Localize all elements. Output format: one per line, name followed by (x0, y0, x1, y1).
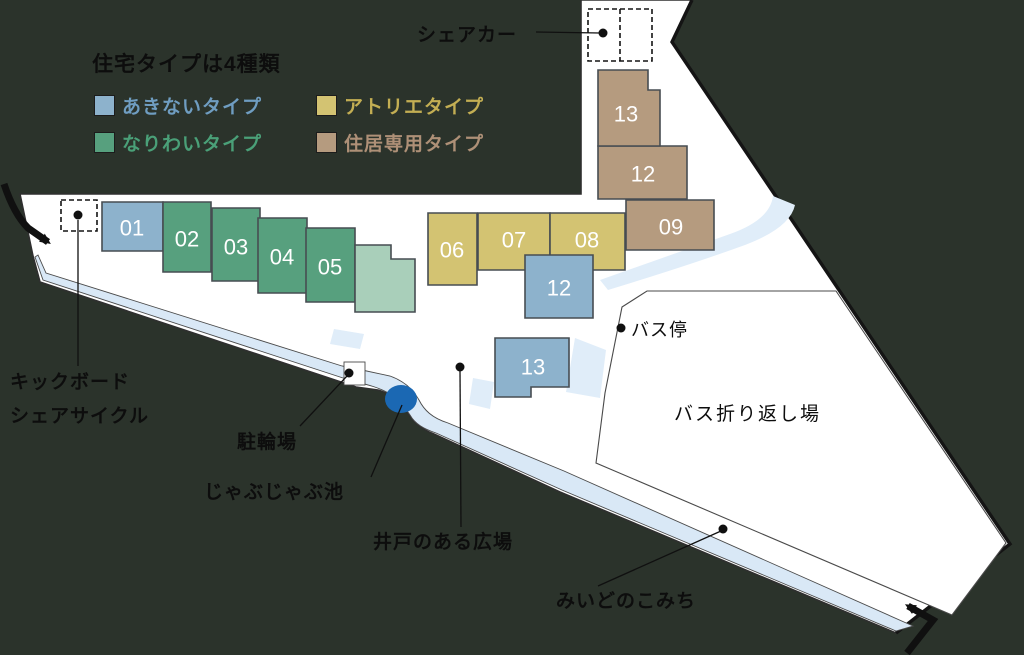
building-number-03: 03 (224, 235, 248, 260)
building-number-01: 01 (120, 216, 144, 241)
legend-item-jukyo: 住居専用タイプ (316, 129, 484, 156)
bus-stop-dot (617, 324, 626, 333)
kickboard-dot (74, 211, 83, 220)
building-number-12: 12 (547, 276, 571, 301)
legend-swatch-akinai (94, 95, 115, 116)
site-map: 01020304050607080912131213 (0, 0, 1024, 655)
komichi-leader (598, 531, 721, 586)
legend-label-jukyo: 住居専用タイプ (344, 129, 484, 156)
legend-swatch-jukyo (316, 132, 337, 153)
building-number-06: 06 (440, 238, 464, 263)
map-label-bus-stop: バス停 (631, 316, 688, 342)
map-label-kickboard: キックボード シェアサイクル (10, 366, 149, 434)
map-label-pond: じゃぶじゃぶ池 (204, 477, 344, 504)
legend-item-nariwai: なりわいタイプ (94, 129, 262, 156)
building-number-13: 13 (614, 102, 638, 127)
legend-swatch-atelier (316, 95, 337, 116)
pond-leader (371, 405, 402, 477)
legend-label-atelier: アトリエタイプ (344, 92, 484, 119)
legend-label-nariwai: なりわいタイプ (122, 129, 262, 156)
komichi-dot (719, 525, 728, 534)
building-number-07: 07 (502, 228, 526, 253)
map-label-kickboard-line1: キックボード (10, 366, 149, 400)
map-label-bicycle-parking: 駐輪場 (237, 427, 297, 454)
building-number-02: 02 (175, 227, 199, 252)
map-label-bus-turnaround: バス折り返し場 (674, 399, 821, 426)
map-label-kickboard-line2: シェアサイクル (10, 400, 149, 434)
map-label-well-plaza: 井戸のある広場 (373, 527, 513, 554)
building-number-09: 09 (659, 215, 683, 240)
page-title: 住宅タイプは4種類 (92, 48, 281, 78)
legend-item-atelier: アトリエタイプ (316, 92, 484, 119)
building-number-08: 08 (575, 228, 599, 253)
map-label-share-car: シェアカー (417, 20, 517, 47)
share-car-dot (599, 29, 608, 38)
legend-item-akinai: あきないタイプ (94, 92, 262, 119)
legend-swatch-nariwai (94, 132, 115, 153)
building-number-05: 05 (318, 255, 342, 280)
building-number-12: 12 (631, 162, 655, 187)
building-number-13: 13 (521, 355, 545, 380)
well-plaza-dot (456, 363, 465, 372)
parking-leader (300, 376, 347, 426)
map-label-komichi: みいどのこみち (556, 586, 696, 613)
legend-label-akinai: あきないタイプ (122, 92, 262, 119)
building-number-04: 04 (270, 245, 294, 270)
parking-dot (345, 369, 354, 378)
